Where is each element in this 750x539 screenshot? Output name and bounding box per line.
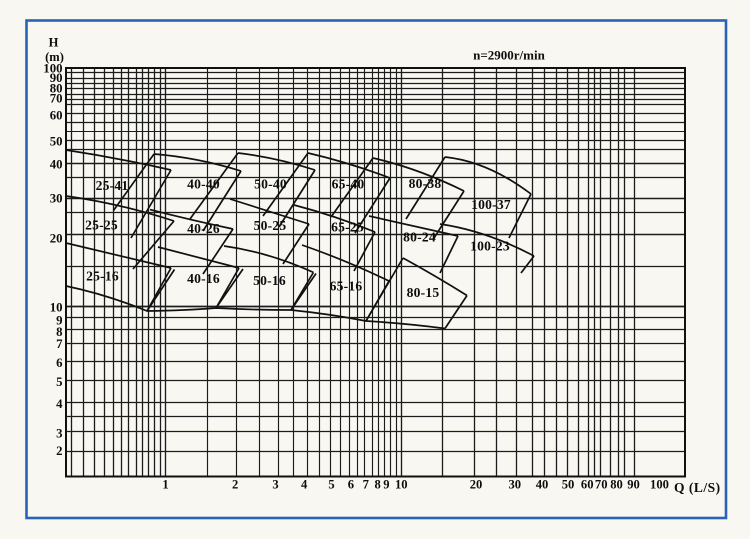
- svg-text:65-25: 65-25: [331, 220, 364, 235]
- svg-text:Q (L/S): Q (L/S): [674, 480, 721, 495]
- svg-text:100-23: 100-23: [470, 238, 510, 253]
- svg-text:20: 20: [50, 232, 63, 246]
- svg-text:40: 40: [536, 478, 549, 492]
- svg-text:60: 60: [50, 109, 63, 123]
- svg-text:65-40: 65-40: [332, 177, 365, 192]
- svg-text:20: 20: [470, 478, 483, 492]
- svg-text:80-38: 80-38: [409, 176, 442, 191]
- svg-text:50-25: 50-25: [254, 218, 287, 233]
- svg-text:30: 30: [509, 478, 522, 492]
- svg-text:80: 80: [610, 478, 623, 492]
- svg-text:70: 70: [595, 478, 608, 492]
- svg-text:70: 70: [50, 92, 63, 106]
- svg-text:100: 100: [650, 478, 669, 492]
- svg-text:40: 40: [50, 157, 63, 171]
- svg-text:4: 4: [301, 478, 308, 492]
- svg-text:6: 6: [56, 356, 63, 370]
- svg-text:8: 8: [375, 478, 381, 492]
- svg-text:9: 9: [383, 478, 389, 492]
- svg-text:2: 2: [232, 478, 238, 492]
- svg-text:50-40: 50-40: [254, 177, 287, 192]
- svg-text:40-26: 40-26: [187, 221, 220, 236]
- svg-text:6: 6: [348, 478, 354, 492]
- svg-text:40-40: 40-40: [187, 177, 220, 192]
- svg-text:50: 50: [562, 478, 575, 492]
- svg-text:80-15: 80-15: [407, 285, 440, 300]
- svg-text:50: 50: [50, 134, 63, 148]
- svg-text:100-37: 100-37: [471, 197, 511, 212]
- svg-text:60: 60: [581, 478, 594, 492]
- svg-text:7: 7: [56, 337, 63, 351]
- svg-text:25-16: 25-16: [86, 269, 119, 284]
- svg-text:H: H: [49, 36, 59, 50]
- svg-text:2: 2: [56, 444, 62, 458]
- svg-text:4: 4: [56, 397, 63, 411]
- svg-text:10: 10: [395, 478, 408, 492]
- svg-text:10: 10: [50, 301, 63, 315]
- svg-text:65-16: 65-16: [330, 278, 363, 293]
- svg-text:3: 3: [56, 427, 62, 441]
- svg-text:3: 3: [272, 478, 278, 492]
- svg-text:30: 30: [50, 191, 63, 205]
- svg-text:40-16: 40-16: [187, 271, 220, 286]
- svg-text:n=2900r/min: n=2900r/min: [473, 48, 545, 63]
- svg-text:90: 90: [627, 478, 640, 492]
- svg-text:80-24: 80-24: [403, 230, 436, 245]
- svg-text:7: 7: [363, 478, 369, 492]
- svg-text:50-16: 50-16: [253, 273, 286, 288]
- svg-text:25-25: 25-25: [85, 218, 118, 233]
- svg-text:5: 5: [328, 478, 334, 492]
- svg-text:25-41: 25-41: [96, 178, 129, 193]
- svg-text:1: 1: [162, 478, 168, 492]
- svg-text:5: 5: [56, 375, 62, 389]
